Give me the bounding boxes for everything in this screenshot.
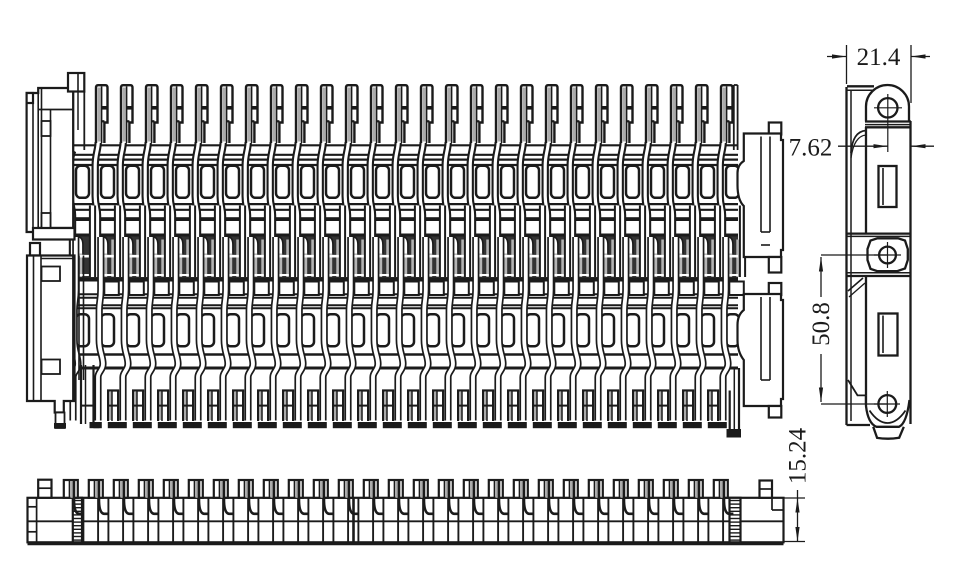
svg-text:21.4: 21.4 bbox=[857, 44, 901, 71]
svg-text:7.62: 7.62 bbox=[789, 135, 833, 162]
svg-text:50.8: 50.8 bbox=[808, 302, 835, 346]
svg-text:15.24: 15.24 bbox=[785, 427, 812, 484]
